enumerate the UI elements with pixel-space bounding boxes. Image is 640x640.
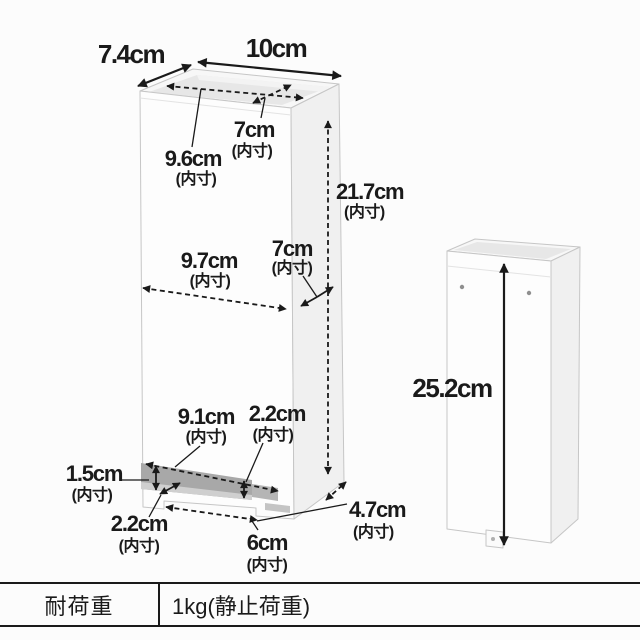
- inner-size-suffix: (内寸): [190, 271, 231, 290]
- dim-inner-height-label: 21.7cm: [336, 179, 404, 204]
- inner-size-suffix: (内寸): [72, 485, 113, 504]
- product-spec-image: 7.4cm 10cm 9.6cm (内寸) 7cm (内寸) 21.7cm (内…: [0, 0, 640, 640]
- mount-hole-right: [527, 291, 531, 295]
- inner-size-suffix: (内寸): [344, 202, 385, 221]
- dim-outer-width-label: 10cm: [246, 33, 307, 63]
- inner-size-suffix: (内寸): [247, 555, 288, 574]
- inner-size-suffix: (内寸): [272, 258, 313, 277]
- dim-inner-depth-middle-label: 7cm: [272, 236, 313, 261]
- spec-table: 耐荷重 1kg(静止荷重): [0, 582, 640, 627]
- dim-inner-width-middle-label: 9.7cm: [181, 248, 238, 273]
- bottom-tab-hole: [491, 537, 495, 541]
- dim-outer-height-label: 25.2cm: [412, 373, 492, 403]
- dim-inner-width-top-label: 9.6cm: [165, 146, 222, 171]
- dim-inner-depth-top-label: 7cm: [234, 117, 275, 142]
- inner-size-suffix: (内寸): [119, 536, 160, 555]
- dim-bottom-rail-label: 2.2cm: [249, 401, 306, 426]
- inner-size-suffix: (内寸): [253, 425, 294, 444]
- spec-table-label-cell: 耐荷重: [0, 584, 160, 625]
- product-dimension-diagram: 7.4cm 10cm 9.6cm (内寸) 7cm (内寸) 21.7cm (内…: [0, 0, 640, 582]
- main-box-right-face: [291, 84, 344, 519]
- dim-slot-corner-label: 2.2cm: [111, 511, 168, 536]
- inner-size-suffix: (内寸): [176, 169, 217, 188]
- mount-hole-left: [460, 285, 464, 289]
- dim-slot-height-label: 1.5cm: [66, 461, 123, 486]
- inner-size-suffix: (内寸): [232, 141, 273, 160]
- load-capacity-value: 1kg(静止荷重): [172, 589, 310, 621]
- dim-inner-depth-bottom-label: 4.7cm: [349, 497, 406, 522]
- inner-size-suffix: (内寸): [353, 522, 394, 541]
- dim-slot-width-label: 9.1cm: [178, 404, 235, 429]
- side-view: 25.2cm: [412, 239, 580, 548]
- front-perspective-view: 7.4cm 10cm 9.6cm (内寸) 7cm (内寸) 21.7cm (内…: [66, 33, 406, 574]
- dim-outer-depth-label: 7.4cm: [98, 39, 165, 69]
- spec-table-value-cell: 1kg(静止荷重): [160, 584, 640, 625]
- inner-size-suffix: (内寸): [186, 427, 227, 446]
- arrow-notch-width: [166, 507, 257, 520]
- dim-notch-width-label: 6cm: [247, 530, 288, 555]
- side-box-right-face: [551, 247, 580, 543]
- load-capacity-label: 耐荷重: [44, 589, 113, 621]
